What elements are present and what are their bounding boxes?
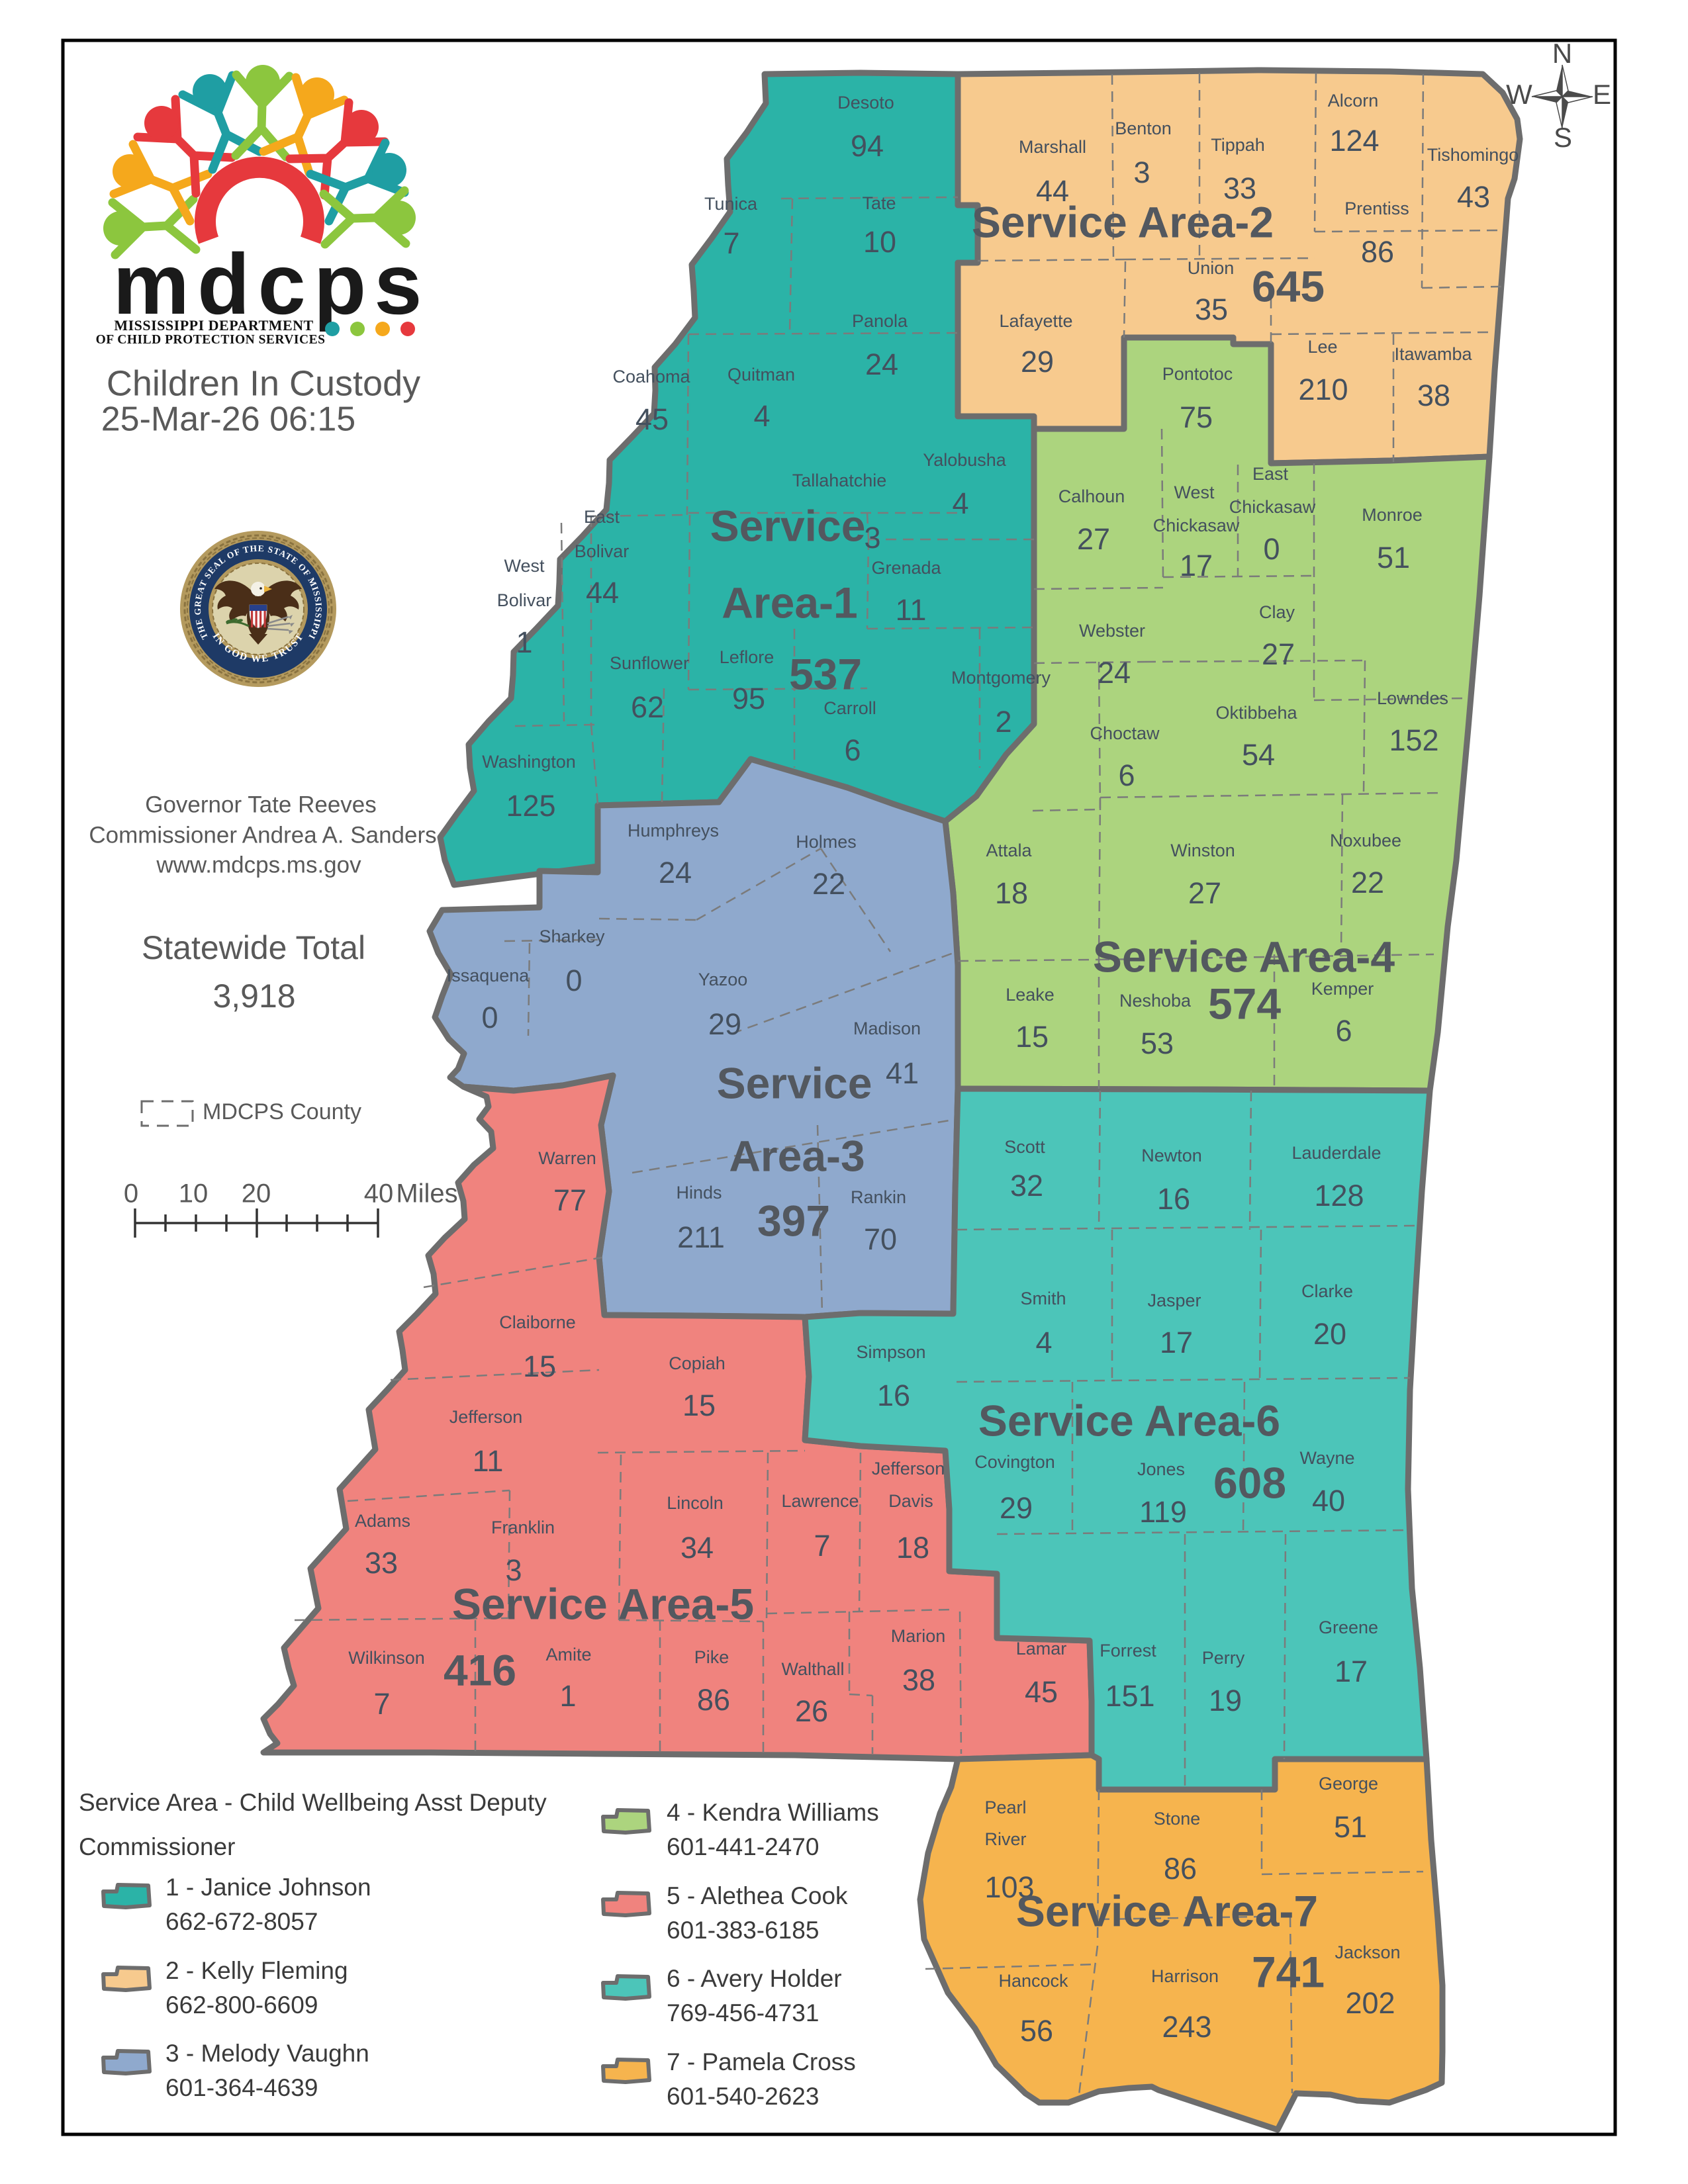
svg-text:East: East: [1252, 464, 1289, 484]
svg-text:15: 15: [1015, 1020, 1049, 1054]
svg-text:17: 17: [1180, 549, 1213, 582]
svg-text:Chickasaw: Chickasaw: [1153, 516, 1240, 535]
svg-text:Attala: Attala: [986, 841, 1032, 860]
svg-text:Coahoma: Coahoma: [612, 367, 690, 387]
svg-text:Jefferson: Jefferson: [449, 1407, 523, 1427]
svg-text:Pearl: Pearl: [984, 1797, 1026, 1817]
svg-text:Benton: Benton: [1115, 118, 1172, 138]
svg-text:4 - Kendra Williams: 4 - Kendra Williams: [667, 1799, 879, 1826]
svg-text:Jones: Jones: [1137, 1459, 1185, 1479]
svg-text:Sunflower: Sunflower: [610, 653, 689, 673]
svg-text:Neshoba: Neshoba: [1119, 991, 1192, 1011]
svg-text:Walthall: Walthall: [781, 1659, 844, 1679]
svg-text:Jasper: Jasper: [1147, 1291, 1201, 1310]
svg-text:N: N: [1552, 38, 1572, 69]
svg-text:124: 124: [1329, 124, 1379, 158]
svg-text:Choctaw: Choctaw: [1090, 723, 1160, 743]
svg-text:20: 20: [242, 1179, 271, 1208]
svg-text:33: 33: [365, 1546, 398, 1580]
svg-text:Hinds: Hinds: [676, 1183, 722, 1203]
svg-text:4: 4: [1035, 1326, 1052, 1359]
svg-text:Service: Service: [710, 501, 866, 550]
svg-text:3: 3: [864, 521, 880, 555]
svg-text:W: W: [1506, 79, 1532, 110]
svg-text:86: 86: [697, 1683, 730, 1717]
svg-text:Desoto: Desoto: [837, 93, 894, 113]
svg-text:29: 29: [708, 1007, 741, 1041]
svg-text:Miles: Miles: [396, 1179, 457, 1208]
svg-text:Tishomingo: Tishomingo: [1427, 145, 1519, 165]
svg-text:Warren: Warren: [538, 1148, 596, 1168]
svg-text:18: 18: [995, 876, 1028, 910]
svg-text:6: 6: [1118, 758, 1135, 792]
svg-text:Sharkey: Sharkey: [539, 927, 605, 946]
svg-text:MISSISSIPPI DEPARTMENT: MISSISSIPPI DEPARTMENT: [114, 317, 313, 334]
svg-text:Smith: Smith: [1020, 1289, 1066, 1308]
svg-text:Tallahatchie: Tallahatchie: [792, 471, 887, 490]
svg-text:5 - Alethea Cook: 5 - Alethea Cook: [667, 1882, 848, 1909]
svg-text:Tippah: Tippah: [1211, 135, 1265, 155]
svg-text:S: S: [1554, 122, 1572, 153]
svg-text:Covington: Covington: [974, 1452, 1055, 1472]
svg-text:6: 6: [844, 733, 861, 767]
svg-text:769-456-4731: 769-456-4731: [667, 1999, 819, 2026]
svg-text:75: 75: [1180, 400, 1213, 434]
svg-text:Rankin: Rankin: [851, 1187, 906, 1207]
svg-text:645: 645: [1252, 261, 1325, 310]
svg-text:45: 45: [635, 402, 669, 436]
svg-text:45: 45: [1025, 1675, 1058, 1709]
svg-text:Prentiss: Prentiss: [1344, 199, 1409, 218]
svg-text:Humphreys: Humphreys: [628, 821, 719, 841]
svg-text:Lawrence: Lawrence: [781, 1491, 859, 1511]
svg-text:56: 56: [1020, 2014, 1053, 2048]
svg-text:1 - Janice Johnson: 1 - Janice Johnson: [165, 1874, 371, 1901]
svg-text:www.mdcps.ms.gov: www.mdcps.ms.gov: [156, 852, 361, 878]
svg-text:19: 19: [1209, 1684, 1242, 1717]
svg-text:Commissioner Andrea A. Sanders: Commissioner Andrea A. Sanders: [89, 822, 436, 848]
svg-text:24: 24: [659, 856, 692, 889]
svg-text:Washington: Washington: [482, 752, 576, 772]
svg-text:Amite: Amite: [545, 1645, 591, 1664]
svg-text:0: 0: [124, 1179, 138, 1208]
svg-text:17: 17: [1335, 1655, 1368, 1688]
svg-text:Service Area-4: Service Area-4: [1093, 932, 1395, 981]
svg-text:32: 32: [1010, 1169, 1043, 1203]
svg-text:22: 22: [1351, 866, 1384, 899]
svg-text:Carroll: Carroll: [823, 698, 876, 718]
svg-text:Lauderdale: Lauderdale: [1291, 1143, 1381, 1163]
svg-text:601-383-6185: 601-383-6185: [667, 1917, 819, 1944]
svg-text:Itawamba: Itawamba: [1394, 344, 1472, 364]
svg-text:Montgomery: Montgomery: [951, 668, 1051, 688]
svg-text:Area-1: Area-1: [722, 578, 857, 627]
svg-text:17: 17: [1160, 1326, 1193, 1359]
svg-text:29: 29: [1000, 1491, 1033, 1525]
svg-text:7: 7: [373, 1687, 390, 1721]
svg-text:4: 4: [952, 486, 968, 520]
svg-text:West: West: [1174, 482, 1215, 502]
svg-text:Scott: Scott: [1004, 1137, 1045, 1157]
svg-text:Panola: Panola: [852, 311, 908, 331]
svg-text:662-672-8057: 662-672-8057: [165, 1908, 318, 1935]
svg-text:Yazoo: Yazoo: [698, 970, 748, 989]
svg-text:86: 86: [1361, 235, 1394, 269]
svg-text:537: 537: [789, 649, 862, 698]
svg-text:Adams: Adams: [355, 1511, 410, 1531]
svg-text:Pike: Pike: [694, 1647, 729, 1667]
svg-text:Leake: Leake: [1006, 985, 1055, 1005]
svg-text:0: 0: [565, 964, 582, 997]
svg-text:4: 4: [753, 399, 770, 433]
svg-text:Lafayette: Lafayette: [999, 311, 1072, 331]
svg-text:210: 210: [1298, 373, 1348, 406]
svg-text:OF CHILD PROTECTION SERVICES: OF CHILD PROTECTION SERVICES: [96, 333, 326, 347]
svg-text:Lee: Lee: [1307, 337, 1337, 357]
svg-text:741: 741: [1252, 1947, 1325, 1996]
svg-text:Children In Custody: Children In Custody: [107, 363, 420, 403]
svg-text:Davis: Davis: [888, 1491, 933, 1511]
svg-text:38: 38: [902, 1663, 935, 1697]
svg-text:Perry: Perry: [1202, 1648, 1245, 1668]
svg-text:River: River: [984, 1829, 1026, 1849]
svg-text:Statewide Total: Statewide Total: [142, 929, 365, 966]
svg-text:22: 22: [812, 867, 845, 901]
svg-text:E: E: [1593, 79, 1611, 110]
svg-text:77: 77: [553, 1183, 586, 1217]
svg-text:1: 1: [516, 625, 532, 659]
svg-text:15: 15: [682, 1388, 716, 1422]
svg-text:53: 53: [1141, 1026, 1174, 1060]
svg-text:0: 0: [481, 1001, 498, 1034]
svg-text:Service Area-7: Service Area-7: [1016, 1886, 1318, 1935]
svg-text:202: 202: [1345, 1986, 1395, 2020]
svg-text:25-Mar-26 06:15: 25-Mar-26 06:15: [101, 400, 355, 439]
svg-text:43: 43: [1457, 180, 1490, 214]
svg-text:Lamar: Lamar: [1016, 1639, 1067, 1659]
svg-text:151: 151: [1105, 1679, 1154, 1713]
svg-text:397: 397: [757, 1196, 830, 1245]
svg-text:27: 27: [1262, 637, 1295, 671]
svg-text:West: West: [504, 556, 545, 576]
svg-text:1: 1: [559, 1679, 576, 1713]
svg-text:3: 3: [1133, 156, 1150, 189]
svg-text:Yalobusha: Yalobusha: [923, 450, 1007, 470]
svg-text:128: 128: [1314, 1179, 1364, 1212]
svg-text:Grenada: Grenada: [871, 558, 941, 578]
svg-text:Alcorn: Alcorn: [1328, 91, 1379, 111]
svg-text:3 - Melody Vaughn: 3 - Melody Vaughn: [165, 2040, 369, 2067]
svg-text:Clarke: Clarke: [1301, 1281, 1353, 1301]
svg-text:6: 6: [1335, 1014, 1352, 1048]
svg-text:Franklin: Franklin: [491, 1518, 555, 1537]
svg-text:608: 608: [1213, 1458, 1286, 1507]
svg-text:Forrest: Forrest: [1100, 1641, 1156, 1661]
svg-text:662-800-6609: 662-800-6609: [165, 1991, 318, 2019]
svg-text:Area-3: Area-3: [729, 1131, 865, 1180]
svg-text:7: 7: [723, 226, 739, 260]
svg-text:16: 16: [877, 1379, 910, 1412]
svg-text:26: 26: [795, 1694, 828, 1728]
svg-text:Chickasaw: Chickasaw: [1229, 497, 1316, 517]
svg-text:7: 7: [814, 1529, 830, 1563]
svg-text:18: 18: [896, 1531, 929, 1565]
svg-text:Lowndes: Lowndes: [1377, 688, 1448, 708]
svg-text:86: 86: [1164, 1852, 1197, 1886]
svg-text:Webster: Webster: [1079, 621, 1145, 641]
svg-text:Service Area-6: Service Area-6: [978, 1396, 1280, 1445]
svg-text:Kemper: Kemper: [1311, 979, 1374, 999]
svg-text:152: 152: [1389, 723, 1438, 757]
svg-text:601-540-2623: 601-540-2623: [667, 2083, 819, 2110]
svg-text:George: George: [1319, 1774, 1378, 1794]
svg-text:Calhoun: Calhoun: [1058, 486, 1125, 506]
svg-text:Harrison: Harrison: [1151, 1966, 1219, 1986]
svg-text:Service Area-5: Service Area-5: [452, 1579, 754, 1628]
svg-text:Winston: Winston: [1170, 841, 1235, 860]
svg-text:34: 34: [680, 1531, 714, 1565]
svg-text:11: 11: [896, 593, 927, 627]
svg-text:Marshall: Marshall: [1019, 137, 1086, 157]
svg-text:62: 62: [631, 690, 664, 724]
svg-text:Hancock: Hancock: [998, 1971, 1068, 1991]
svg-text:41: 41: [886, 1056, 919, 1090]
svg-text:Newton: Newton: [1141, 1146, 1202, 1165]
svg-text:East: East: [584, 507, 620, 527]
svg-text:Holmes: Holmes: [796, 832, 857, 852]
svg-text:24: 24: [865, 347, 898, 381]
svg-text:Greene: Greene: [1319, 1617, 1378, 1637]
svg-text:11: 11: [473, 1444, 504, 1478]
svg-text:Issaquena: Issaquena: [447, 966, 530, 985]
svg-text:Leflore: Leflore: [720, 647, 774, 667]
svg-text:601-364-4639: 601-364-4639: [165, 2074, 318, 2101]
svg-text:94: 94: [851, 129, 884, 163]
svg-text:Jackson: Jackson: [1335, 1942, 1400, 1962]
svg-text:211: 211: [677, 1220, 725, 1254]
svg-text:27: 27: [1077, 522, 1110, 556]
svg-text:29: 29: [1021, 345, 1054, 379]
svg-text:0: 0: [1263, 532, 1280, 566]
svg-text:Service Area - Child Wellbeing: Service Area - Child Wellbeing Asst Depu…: [79, 1789, 547, 1816]
svg-text:2: 2: [995, 705, 1011, 739]
svg-text:35: 35: [1195, 293, 1228, 326]
svg-text:Marion: Marion: [891, 1626, 946, 1646]
svg-text:6 - Avery Holder: 6 - Avery Holder: [667, 1965, 842, 1992]
svg-text:Simpson: Simpson: [856, 1342, 925, 1362]
svg-text:MDCPS County: MDCPS County: [203, 1099, 361, 1124]
svg-text:40: 40: [1312, 1484, 1345, 1518]
svg-text:Service: Service: [717, 1058, 872, 1107]
svg-text:Union: Union: [1188, 258, 1235, 278]
svg-text:Wilkinson: Wilkinson: [348, 1648, 425, 1668]
svg-text:Noxubee: Noxubee: [1330, 831, 1401, 850]
svg-text:Madison: Madison: [853, 1019, 921, 1038]
svg-text:Jefferson: Jefferson: [872, 1459, 945, 1479]
svg-text:95: 95: [732, 682, 765, 715]
svg-text:Tunica: Tunica: [704, 194, 758, 214]
svg-text:416: 416: [444, 1645, 516, 1694]
svg-text:44: 44: [586, 576, 619, 610]
svg-text:601-441-2470: 601-441-2470: [667, 1833, 819, 1860]
svg-text:Claiborne: Claiborne: [499, 1312, 576, 1332]
svg-text:574: 574: [1208, 979, 1281, 1028]
svg-text:15: 15: [523, 1349, 556, 1383]
svg-text:119: 119: [1139, 1495, 1187, 1529]
svg-text:Commissioner: Commissioner: [79, 1833, 235, 1860]
svg-text:51: 51: [1334, 1810, 1367, 1844]
svg-text:Tate: Tate: [862, 193, 896, 213]
svg-text:20: 20: [1313, 1317, 1346, 1351]
svg-text:27: 27: [1188, 876, 1221, 910]
svg-text:Bolivar: Bolivar: [497, 590, 552, 610]
svg-text:2 - Kelly Fleming: 2 - Kelly Fleming: [165, 1957, 348, 1984]
svg-text:7 - Pamela Cross: 7 - Pamela Cross: [667, 2048, 856, 2075]
svg-text:16: 16: [1157, 1182, 1190, 1216]
svg-text:70: 70: [864, 1222, 897, 1256]
svg-text:125: 125: [506, 789, 555, 823]
svg-text:51: 51: [1377, 541, 1410, 574]
svg-text:Pontotoc: Pontotoc: [1162, 364, 1233, 384]
svg-text:Service Area-2: Service Area-2: [972, 197, 1274, 246]
svg-text:40: 40: [364, 1179, 394, 1208]
svg-text:Quitman: Quitman: [727, 365, 795, 385]
svg-text:Lincoln: Lincoln: [667, 1493, 724, 1513]
svg-text:Oktibbeha: Oktibbeha: [1215, 703, 1297, 723]
svg-text:Governor Tate Reeves: Governor Tate Reeves: [145, 792, 377, 817]
svg-text:24: 24: [1098, 656, 1131, 690]
svg-text:3,918: 3,918: [212, 978, 295, 1015]
svg-text:Copiah: Copiah: [669, 1353, 726, 1373]
svg-text:243: 243: [1162, 2010, 1211, 2044]
svg-text:10: 10: [179, 1179, 209, 1208]
svg-text:10: 10: [863, 225, 896, 259]
svg-text:Stone: Stone: [1154, 1809, 1201, 1829]
svg-text:Clay: Clay: [1259, 602, 1295, 622]
svg-text:Wayne: Wayne: [1299, 1448, 1354, 1468]
svg-text:54: 54: [1242, 738, 1275, 772]
svg-text:Bolivar: Bolivar: [575, 541, 630, 561]
svg-text:38: 38: [1417, 379, 1450, 412]
svg-text:Monroe: Monroe: [1362, 505, 1423, 525]
